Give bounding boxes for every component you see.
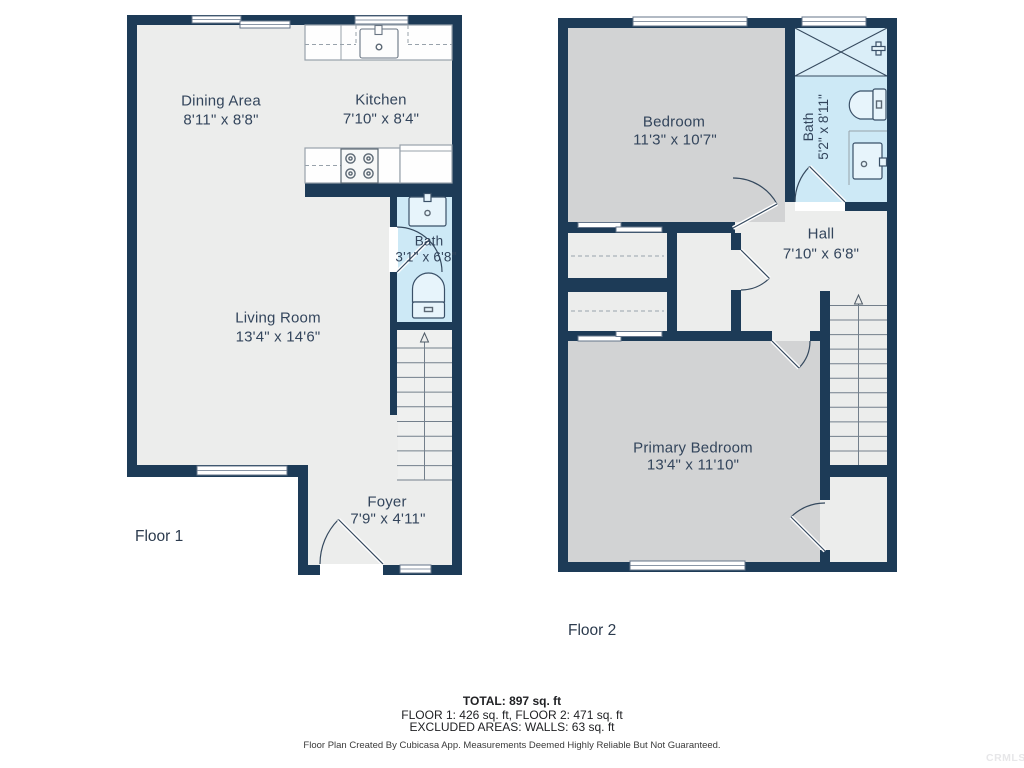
kitchen-label: Kitchen [355,92,406,109]
floor2-stairs-left-wall-lower [820,550,830,562]
floor1-tag: Floor 1 [135,528,183,546]
kitchen-dims: 7'10" x 8'4" [343,111,419,128]
floor-plan-canvas: Dining Area 8'11" x 8'8" Kitchen 7'10" x… [0,0,1024,768]
dining-area-label: Dining Area [181,93,261,110]
hall-dims: 7'10" x 6'8" [783,246,859,263]
foyer-dims: 7'9" x 4'11" [350,511,425,528]
floor2-midroom-right-wall-upper [731,233,741,250]
foyer-label: Foyer [367,494,406,511]
dining-area-dims: 8'11" x 8'8" [183,112,258,129]
living-room-dims: 13'4" x 14'6" [236,329,321,346]
floor2-bedroom-bottom-wall [568,222,735,233]
floor2-hall-bedroom-wall [568,331,772,341]
excluded-areas-text: EXCLUDED AREAS: WALLS: 63 sq. ft [0,720,1024,734]
bedroom-dims: 11'3" x 10'7" [633,132,717,149]
floor2-bath-bottom-wall [845,202,887,211]
bath2-label: Bath 5'2" x 8'11" [800,94,832,160]
floor2-closet-divider-wall [568,278,667,292]
primary-bedroom-dims: 13'4" x 11'10" [647,457,739,474]
bedroom-label: Bedroom [643,114,705,131]
crmls-watermark: CRMLS [986,752,1024,764]
floor2-stairs-bottom-wall [828,465,887,477]
floor2-bath-left-wall [785,28,795,202]
total-area-text: TOTAL: 897 sq. ft [0,694,1024,708]
floor1-stairs-floor [397,330,452,480]
floor1-kitchen-bath-wall [305,183,462,197]
floor2-midroom-right-wall-lower [731,290,741,331]
living-room-label: Living Room [235,310,321,327]
primary-bedroom-label: Primary Bedroom [633,440,753,457]
floor1-bath-bottom-wall [390,322,452,330]
bath1-label: Bath [415,234,444,249]
floor1-stairs-left-wall [390,330,397,415]
attribution-text: Floor Plan Created By Cubicasa App. Meas… [0,740,1024,751]
floor2-tag: Floor 2 [568,622,616,640]
bath2-name: Bath [800,94,816,160]
bath2-dims: 5'2" x 8'11" [816,94,832,160]
floor2-closet-right-wall [667,233,677,340]
floor1-bath-left-wall-upper [390,183,397,227]
bath1-dims: 3'1" x 6'8" [395,250,456,265]
hall-label: Hall [808,226,835,243]
